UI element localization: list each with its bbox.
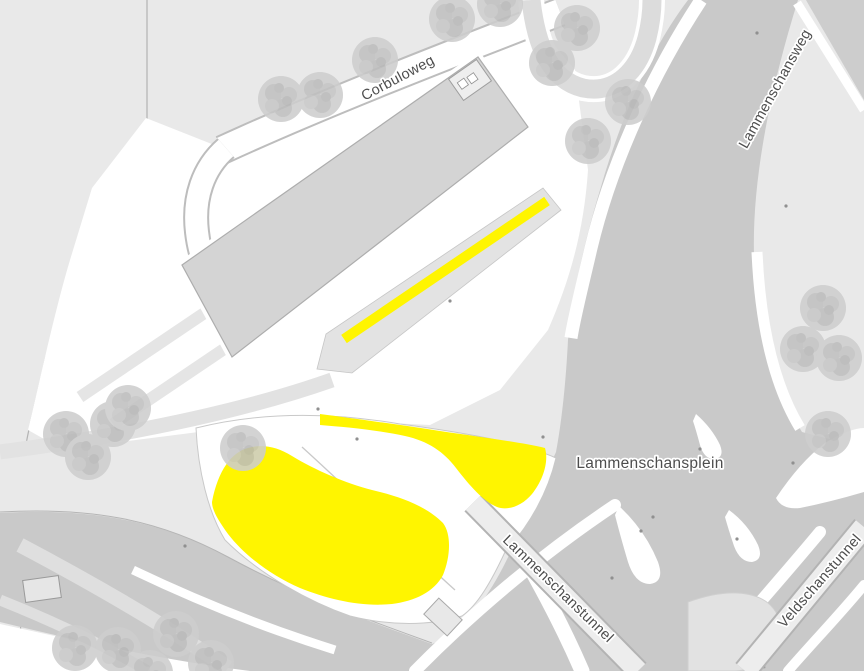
map: Corbuloweg Lammenschansweg Lammenschansp… bbox=[0, 0, 864, 671]
street-label-lammenschansplein: Lammenschansplein bbox=[576, 455, 723, 472]
small-building-sw bbox=[23, 576, 62, 603]
map-canvas[interactable]: Corbuloweg Lammenschansweg Lammenschansp… bbox=[0, 0, 864, 671]
